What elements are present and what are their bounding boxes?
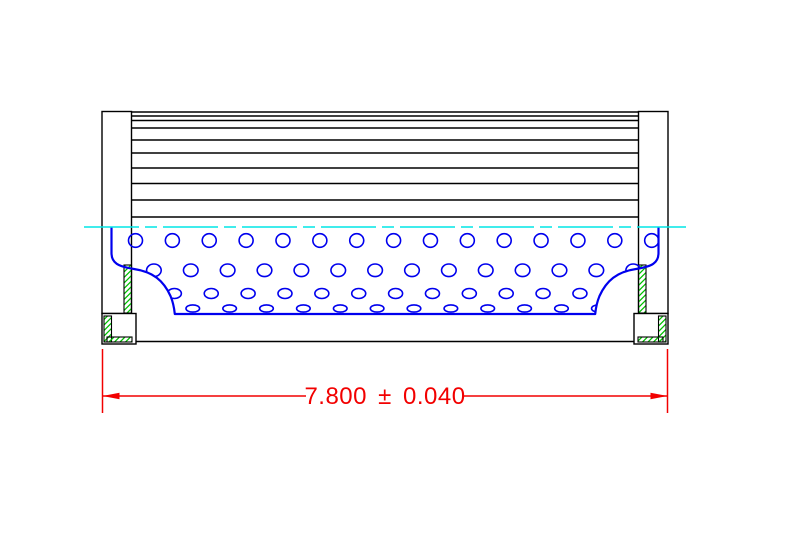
- perforation-hole: [165, 234, 179, 248]
- perforation-hole: [297, 305, 311, 312]
- perforation-hole: [589, 264, 604, 277]
- dimension-arrowhead: [103, 393, 120, 399]
- perforation-hole: [260, 305, 274, 312]
- perforation-hole: [387, 234, 401, 248]
- perforation-hole: [294, 264, 309, 277]
- perforation-hole: [555, 305, 569, 312]
- perforation-hole: [350, 234, 364, 248]
- perforation-hole: [552, 264, 567, 277]
- perforation-hole: [444, 305, 458, 312]
- right-cap-foot-bottom-hatch: [638, 337, 663, 342]
- perforation-hole: [315, 289, 329, 299]
- perforation-hole: [610, 289, 624, 299]
- perforation-hole: [481, 305, 495, 312]
- drawing-canvas: 7.800 ± 0.040: [0, 0, 789, 546]
- perforation-hole: [333, 305, 347, 312]
- perforation-hole: [423, 234, 437, 248]
- perforation-hole: [352, 289, 366, 299]
- dimension-arrowhead: [651, 393, 668, 399]
- tube-outline: [112, 227, 659, 314]
- perforation-hole: [239, 234, 253, 248]
- perforation-hole: [368, 264, 383, 277]
- left-cap-foot-bottom-hatch: [107, 337, 132, 342]
- perforation-hole: [571, 234, 585, 248]
- perforation-hole: [425, 289, 439, 299]
- perforation-hole: [499, 289, 513, 299]
- perforation-hole: [405, 264, 420, 277]
- perforation-hole: [608, 234, 622, 248]
- perforation-hole: [223, 305, 237, 312]
- perforation-hole: [518, 305, 532, 312]
- perforated-center-tube: [112, 227, 659, 314]
- perforation-hole: [202, 234, 216, 248]
- right-cap-wall-seal-hatch: [639, 265, 647, 313]
- perforation-hole: [149, 305, 163, 312]
- perforation-hole: [241, 289, 255, 299]
- perforation-hole: [220, 264, 235, 277]
- perforation-holes: [129, 234, 659, 312]
- perforation-hole: [276, 234, 290, 248]
- perforation-hole: [573, 289, 587, 299]
- drawing-layers: [84, 112, 686, 414]
- perforation-hole: [536, 289, 550, 299]
- perforation-hole: [131, 289, 145, 299]
- perforation-hole: [534, 234, 548, 248]
- filter-element-drawing: 7.800 ± 0.040: [0, 0, 789, 546]
- perforation-hole: [515, 264, 530, 277]
- perforation-hole: [370, 305, 384, 312]
- perforation-hole: [257, 264, 272, 277]
- perforation-hole: [183, 264, 198, 277]
- perforation-hole: [592, 305, 606, 312]
- dimension-text: 7.800 ± 0.040: [304, 383, 465, 410]
- perforation-hole: [460, 234, 474, 248]
- perforation-hole: [407, 305, 421, 312]
- perforation-hole: [186, 305, 200, 312]
- perforation-hole: [389, 289, 403, 299]
- pleated-media: [130, 112, 640, 217]
- left-cap-wall-seal-hatch: [124, 265, 132, 313]
- perforation-hole: [442, 264, 457, 277]
- perforation-hole: [331, 264, 346, 277]
- perforation-hole: [497, 234, 511, 248]
- perforation-hole: [204, 289, 218, 299]
- perforation-hole: [478, 264, 493, 277]
- perforation-hole: [278, 289, 292, 299]
- perforation-hole: [313, 234, 327, 248]
- perforation-hole: [462, 289, 476, 299]
